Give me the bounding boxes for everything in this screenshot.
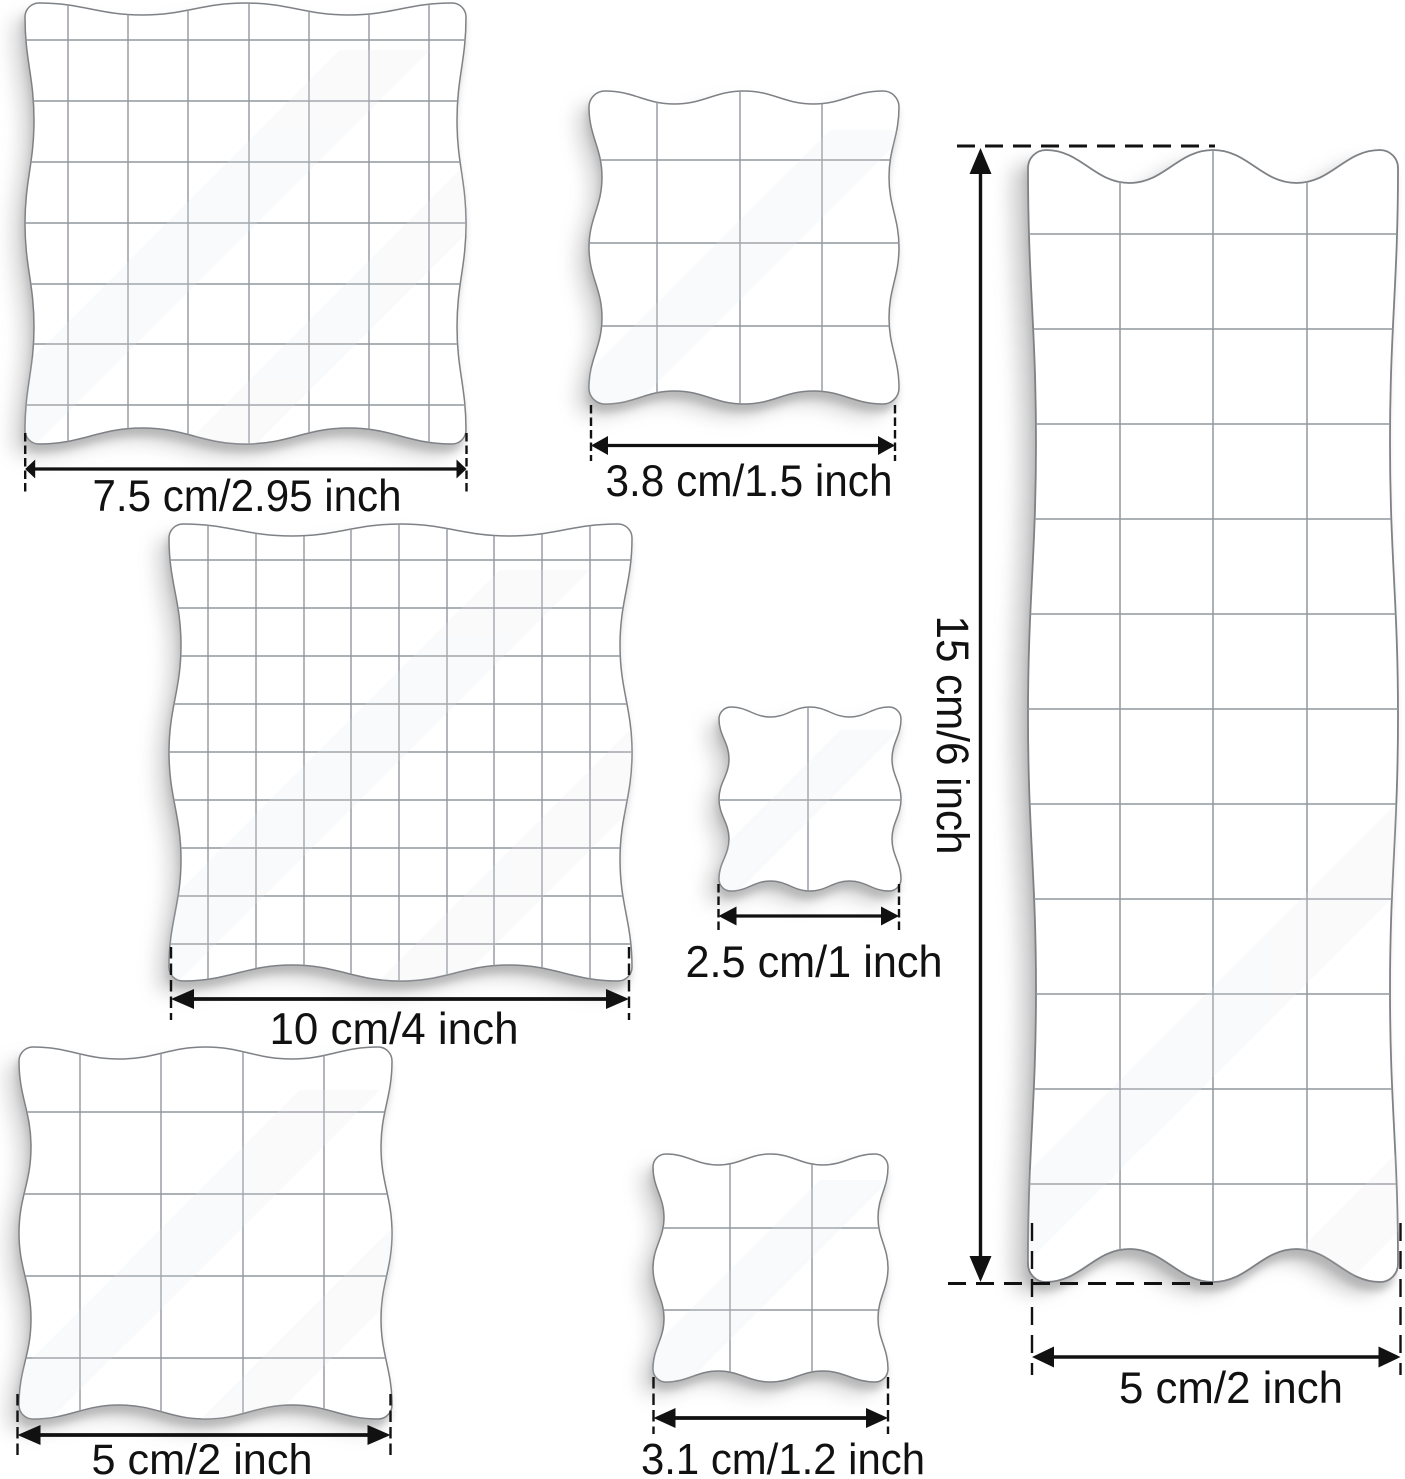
svg-text:3.8 cm/1.5 inch: 3.8 cm/1.5 inch: [606, 457, 893, 506]
svg-text:7.5 cm/2.95 inch: 7.5 cm/2.95 inch: [93, 472, 402, 521]
svg-text:15 cm/6 inch: 15 cm/6 inch: [927, 616, 978, 855]
svg-text:3.1 cm/1.2 inch: 3.1 cm/1.2 inch: [641, 1435, 925, 1479]
svg-text:5 cm/2 inch: 5 cm/2 inch: [92, 1436, 313, 1479]
svg-text:2.5 cm/1 inch: 2.5 cm/1 inch: [686, 938, 943, 987]
svg-text:10 cm/4 inch: 10 cm/4 inch: [270, 1005, 519, 1054]
svg-text:5 cm/2 inch: 5 cm/2 inch: [1119, 1364, 1343, 1413]
